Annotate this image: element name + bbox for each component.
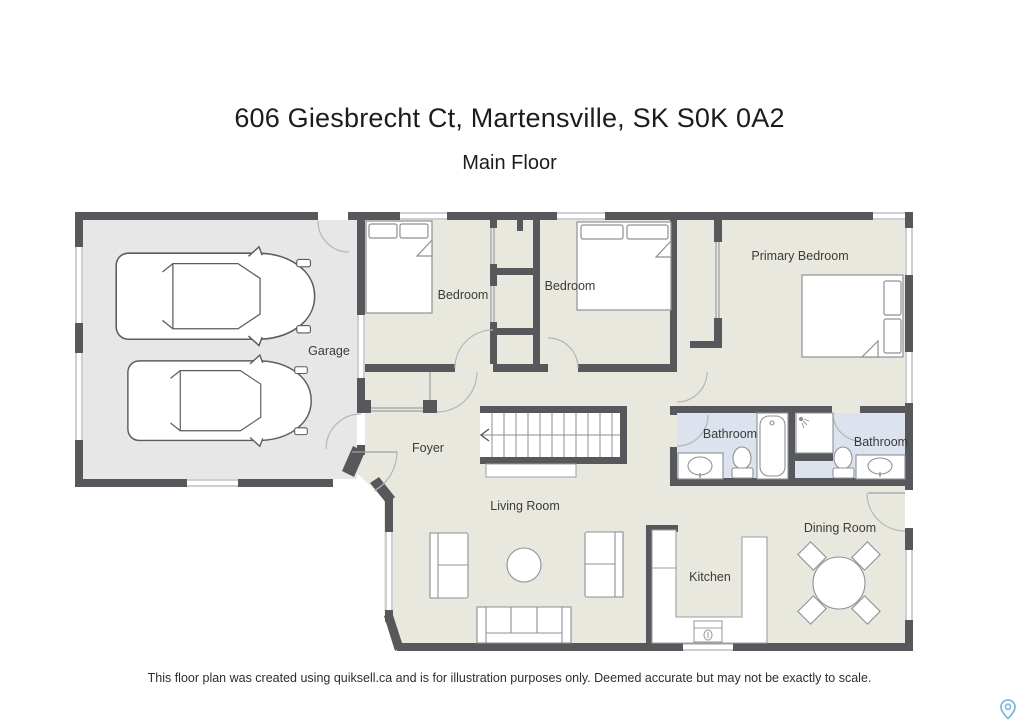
- bed-2: [577, 222, 671, 310]
- coffee-table: [507, 548, 541, 582]
- car-2: [128, 355, 311, 446]
- label-bedroom1: Bedroom: [438, 288, 489, 302]
- label-dining-room: Dining Room: [804, 521, 876, 535]
- armchair-left: [430, 533, 468, 598]
- label-bathroom2: Bathroom: [854, 435, 908, 449]
- label-kitchen: Kitchen: [689, 570, 731, 584]
- label-bathroom1: Bathroom: [703, 427, 757, 441]
- armchair-right: [585, 532, 623, 597]
- floor-plan-drawing: Garage Bedroom Bedroom Primary Bedroom F…: [0, 0, 1019, 720]
- label-foyer: Foyer: [412, 441, 444, 455]
- car-1: [116, 247, 314, 346]
- stove: [694, 621, 722, 642]
- disclaimer-text: This floor plan was created using quikse…: [0, 671, 1019, 685]
- bed-1: [366, 221, 432, 313]
- label-garage: Garage: [308, 344, 350, 358]
- primary-bed: [802, 275, 903, 357]
- floor-plan-page: 606 Giesbrecht Ct, Martensville, SK S0K …: [0, 0, 1019, 720]
- label-living-room: Living Room: [490, 499, 559, 513]
- label-primary-bedroom: Primary Bedroom: [751, 249, 848, 263]
- map-pin-icon: [1001, 700, 1015, 719]
- sofa: [477, 607, 571, 643]
- label-bedroom2: Bedroom: [545, 279, 596, 293]
